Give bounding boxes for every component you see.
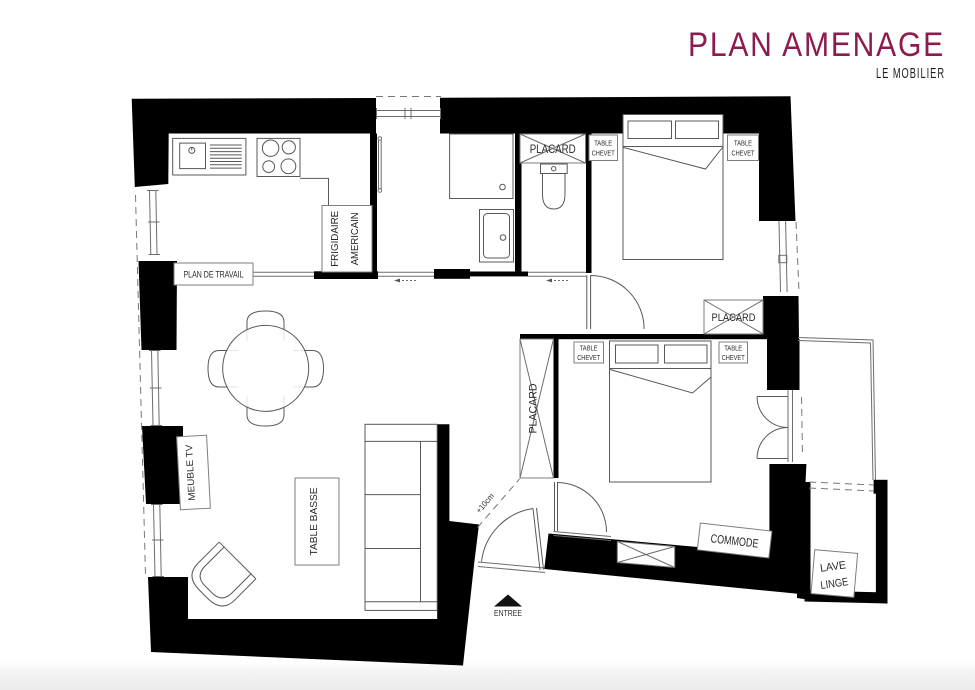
svg-text:CHEVET: CHEVET [732, 151, 756, 158]
svg-text:TABLE: TABLE [594, 141, 612, 148]
svg-text:PLACARD: PLACARD [528, 383, 540, 433]
svg-text:PLACARD: PLACARD [530, 142, 576, 156]
svg-text:PLAN DE TRAVAIL: PLAN DE TRAVAIL [184, 270, 244, 280]
svg-text:PLACARD: PLACARD [712, 312, 756, 324]
svg-text:TABLE: TABLE [724, 346, 742, 353]
svg-text:LE MOBILIER: LE MOBILIER [876, 66, 945, 82]
svg-text:AMERICAIN: AMERICAIN [350, 212, 361, 265]
svg-text:FRIGIDAIRE: FRIGIDAIRE [330, 210, 341, 266]
svg-text:CHEVET: CHEVET [577, 355, 601, 362]
svg-text:TABLE: TABLE [734, 141, 752, 148]
svg-text:TABLE: TABLE [580, 346, 598, 353]
svg-text:CHEVET: CHEVET [592, 151, 616, 158]
svg-text:TABLE BASSE: TABLE BASSE [308, 488, 320, 556]
svg-text:PLAN AMENAGE: PLAN AMENAGE [688, 26, 945, 64]
svg-text:ENTREE: ENTREE [494, 608, 522, 618]
svg-text:CHEVET: CHEVET [722, 355, 746, 362]
